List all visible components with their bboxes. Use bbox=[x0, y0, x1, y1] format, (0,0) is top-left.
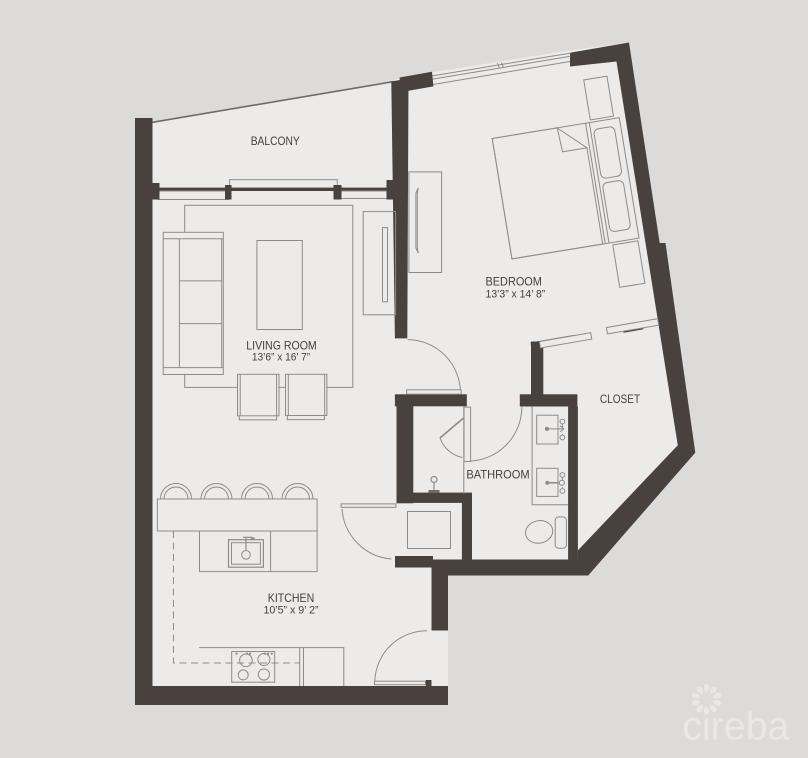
svg-text:BALCONY: BALCONY bbox=[251, 134, 300, 148]
svg-text:BEDROOM: BEDROOM bbox=[486, 274, 542, 288]
svg-text:LIVING ROOM: LIVING ROOM bbox=[246, 339, 317, 353]
svg-text:13’6” x 16’ 7”: 13’6” x 16’ 7” bbox=[252, 352, 311, 364]
svg-text:CLOSET: CLOSET bbox=[600, 392, 641, 406]
svg-text:BATHROOM: BATHROOM bbox=[466, 468, 529, 482]
svg-text:KITCHEN: KITCHEN bbox=[268, 591, 315, 605]
svg-text:10’5” x 9’ 2”: 10’5” x 9’ 2” bbox=[263, 604, 318, 616]
svg-text:13’3” x 14’ 8”: 13’3” x 14’ 8” bbox=[486, 289, 546, 301]
svg-text:cireba: cireba bbox=[682, 705, 790, 749]
